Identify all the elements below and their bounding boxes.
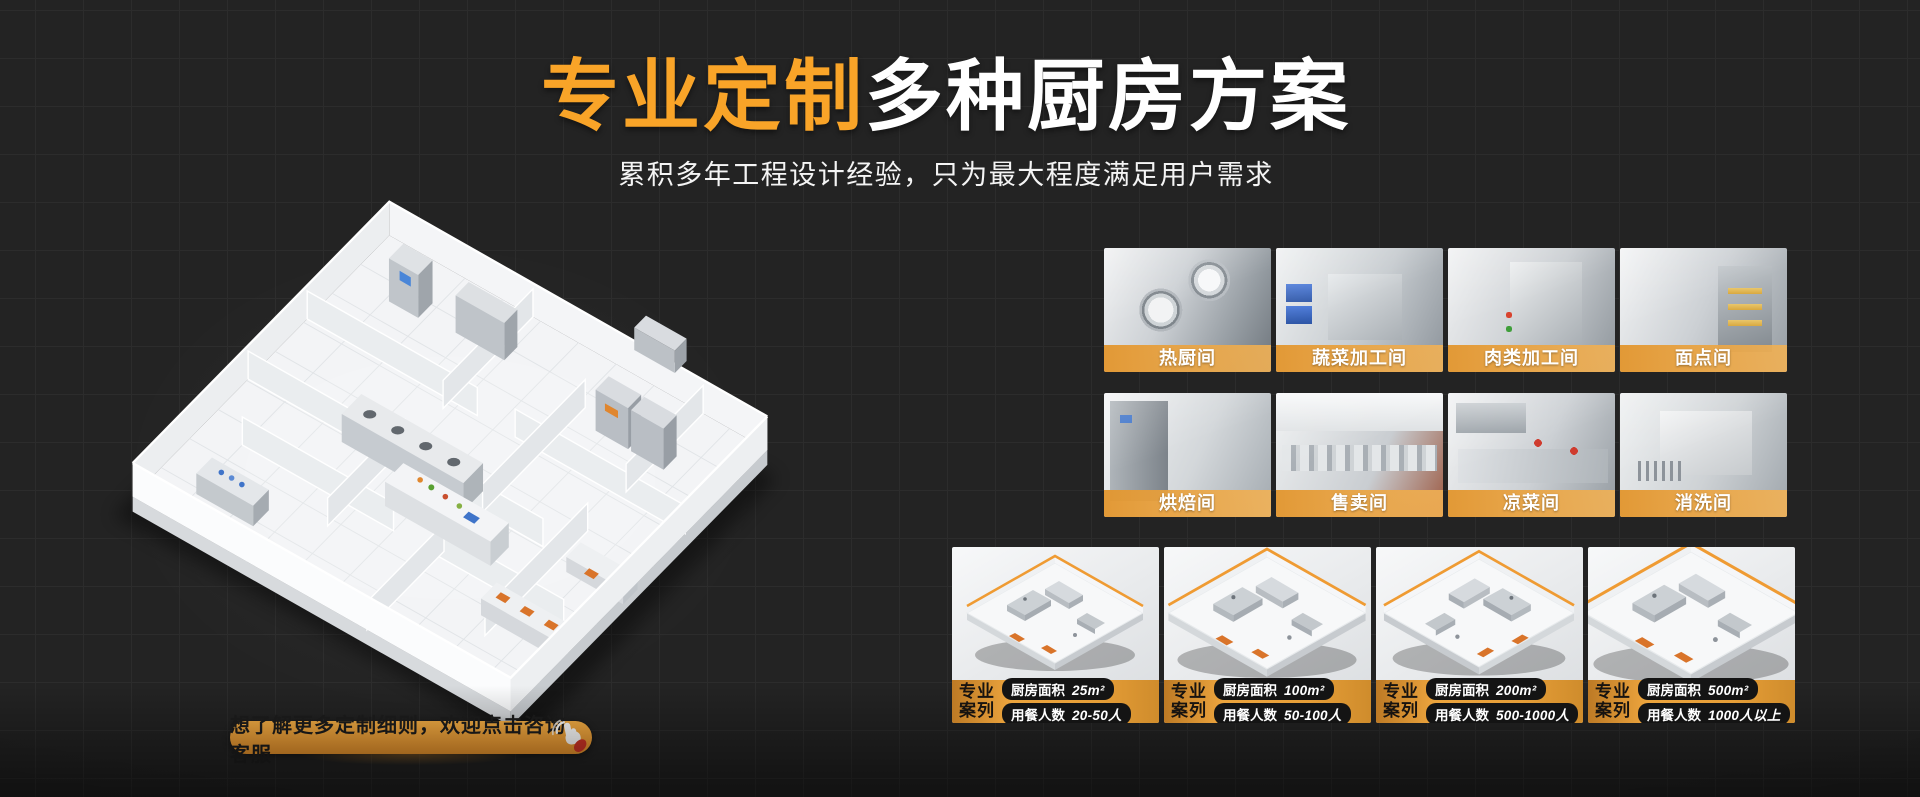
room-tile-baking[interactable]: 烘焙间 xyxy=(1104,393,1271,517)
case-card-500m2[interactable]: 专业案列 厨房面积500m² 用餐人数1000人以上 xyxy=(1588,547,1795,723)
contact-service-button[interactable]: 想了解更多定制细则，欢迎点击咨询客服 xyxy=(230,721,592,754)
room-tile-dishwashing[interactable]: 消洗间 xyxy=(1620,393,1787,517)
room-tile-grid: 热厨间 蔬菜加工间 肉类加工间 面点间 烘焙间 售卖间 凉菜间 消洗间 xyxy=(1104,248,1787,517)
room-tile-cold-dishes[interactable]: 凉菜间 xyxy=(1448,393,1615,517)
mini-floorplan-illustration xyxy=(955,549,1155,679)
room-tile-label: 热厨间 xyxy=(1104,345,1271,372)
case-band: 专业案列 厨房面积200m² 用餐人数500-1000人 xyxy=(1376,680,1583,723)
room-tile-pastry[interactable]: 面点间 xyxy=(1620,248,1787,372)
case-area-pill: 厨房面积200m² xyxy=(1426,678,1546,700)
room-tile-label: 售卖间 xyxy=(1276,490,1443,517)
case-badge: 专业案列 xyxy=(1383,683,1419,720)
room-tile-label: 烘焙间 xyxy=(1104,490,1271,517)
case-band: 专业案列 厨房面积500m² 用餐人数1000人以上 xyxy=(1588,680,1795,723)
room-tile-meat-processing[interactable]: 肉类加工间 xyxy=(1448,248,1615,372)
contact-service-label: 想了解更多定制细则，欢迎点击咨询客服 xyxy=(230,709,592,767)
case-band: 专业案列 厨房面积25m² 用餐人数20-50人 xyxy=(952,680,1159,723)
room-tile-label: 面点间 xyxy=(1620,345,1787,372)
case-badge: 专业案列 xyxy=(1171,683,1207,720)
room-tile-label: 肉类加工间 xyxy=(1448,345,1615,372)
case-area-pill: 厨房面积500m² xyxy=(1638,678,1758,700)
case-card-200m2[interactable]: 专业案列 厨房面积200m² 用餐人数500-1000人 xyxy=(1376,547,1583,723)
case-diners-pill: 用餐人数500-1000人 xyxy=(1426,703,1578,723)
title-rest: 多种厨房方案 xyxy=(865,52,1351,140)
room-tile-label: 蔬菜加工间 xyxy=(1276,345,1443,372)
page-subtitle: 累积多年工程设计经验，只为最大程度满足用户需求 xyxy=(0,153,1906,192)
case-card-100m2[interactable]: 专业案列 厨房面积100m² 用餐人数50-100人 xyxy=(1164,547,1371,723)
case-band: 专业案列 厨房面积100m² 用餐人数50-100人 xyxy=(1164,680,1371,723)
mini-floorplan-illustration xyxy=(1588,547,1795,693)
room-tile-hot-kitchen[interactable]: 热厨间 xyxy=(1104,248,1271,372)
kitchen-solutions-banner: 专业定制多种厨房方案 累积多年工程设计经验，只为最大程度满足用户需求 xyxy=(0,0,1920,797)
room-tile-vegetable-processing[interactable]: 蔬菜加工间 xyxy=(1276,248,1443,372)
page-title: 专业定制多种厨房方案 xyxy=(0,50,1906,144)
case-badge: 专业案列 xyxy=(1595,683,1631,720)
room-tile-serving[interactable]: 售卖间 xyxy=(1276,393,1443,517)
case-diners-pill: 用餐人数20-50人 xyxy=(1002,703,1131,723)
click-hand-icon xyxy=(550,717,588,755)
title-highlight: 专业定制 xyxy=(541,52,865,140)
case-card-25m2[interactable]: 专业案列 厨房面积25m² 用餐人数20-50人 xyxy=(952,547,1159,723)
case-diners-pill: 用餐人数50-100人 xyxy=(1214,703,1351,723)
mini-floorplan-illustration xyxy=(1376,547,1583,684)
case-card-row: 专业案列 厨房面积25m² 用餐人数20-50人 专业案列 厨房面积100m² … xyxy=(952,547,1795,723)
case-area-pill: 厨房面积100m² xyxy=(1214,678,1334,700)
room-tile-label: 消洗间 xyxy=(1620,490,1787,517)
hero-section: 专业定制多种厨房方案 累积多年工程设计经验，只为最大程度满足用户需求 xyxy=(0,50,1906,192)
case-area-pill: 厨房面积25m² xyxy=(1002,678,1114,700)
room-tile-label: 凉菜间 xyxy=(1448,490,1615,517)
case-diners-pill: 用餐人数1000人以上 xyxy=(1638,703,1790,723)
case-badge: 专业案列 xyxy=(959,683,995,720)
floor-plan-illustration xyxy=(100,198,800,758)
mini-floorplan-illustration xyxy=(1164,547,1371,687)
